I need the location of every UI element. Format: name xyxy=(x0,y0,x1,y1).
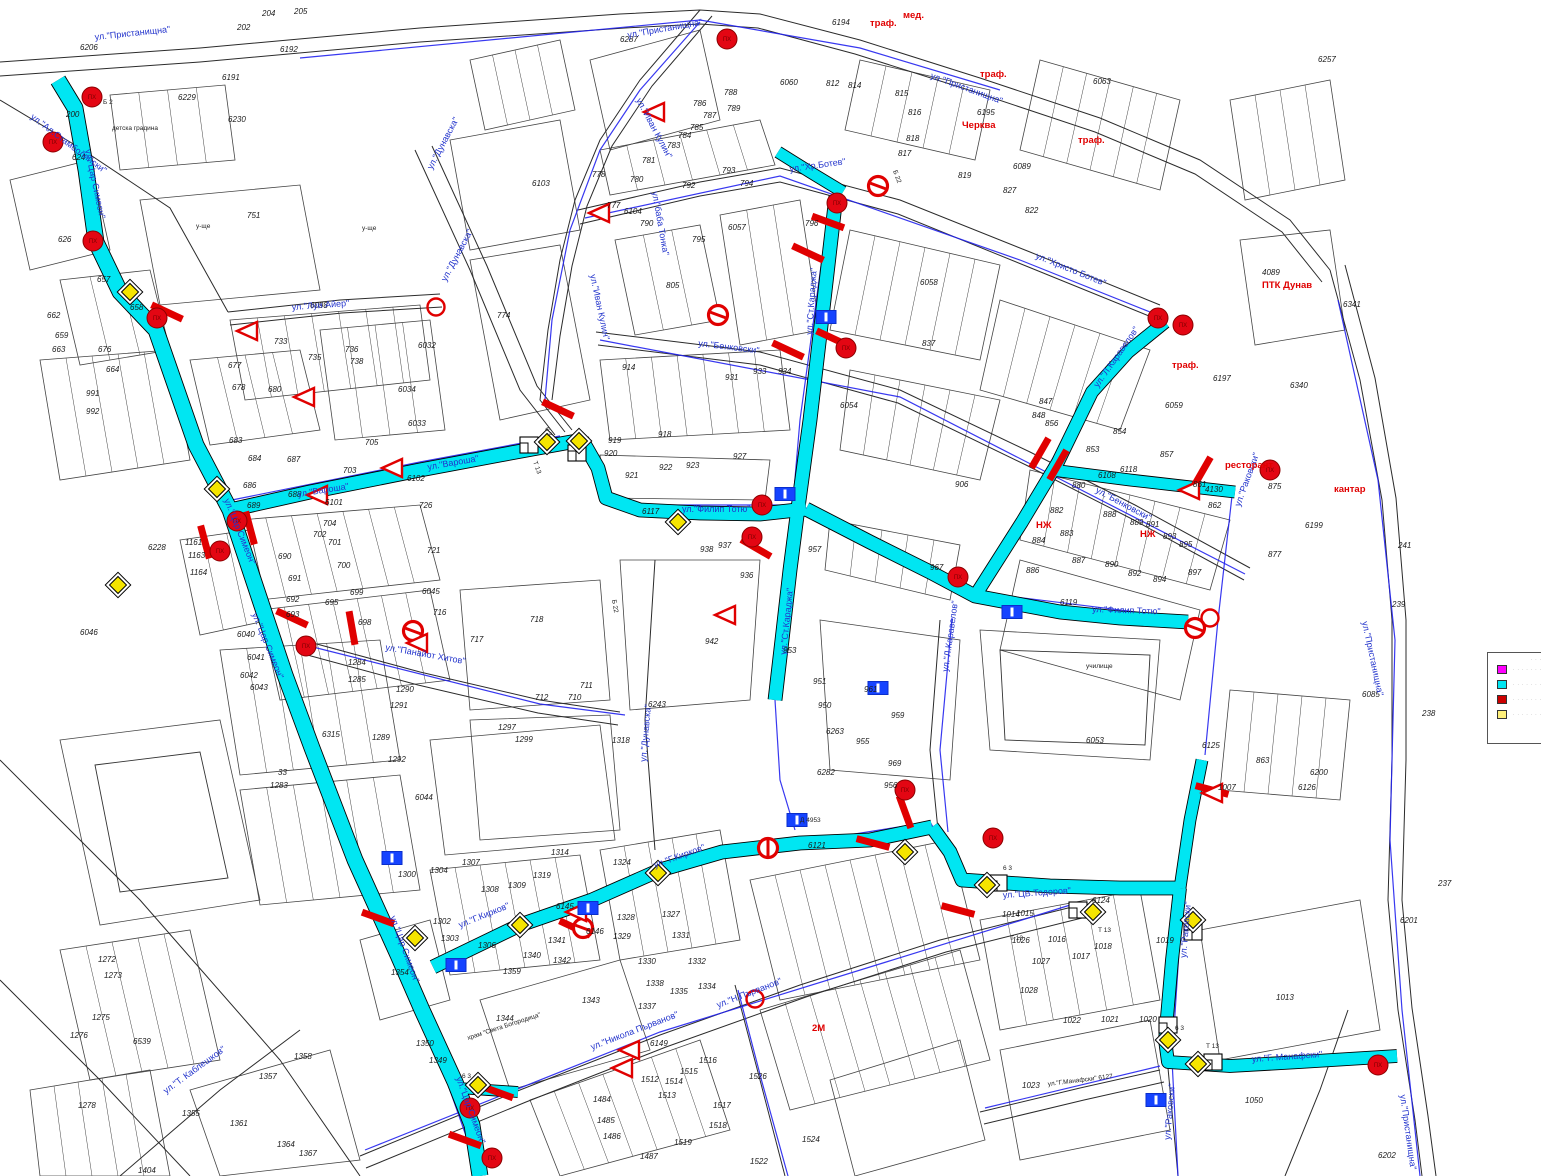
parcel-number: 786 xyxy=(693,99,707,108)
parcel-number: 6060 xyxy=(780,78,798,87)
parcel-number: 683 xyxy=(229,436,243,445)
parcel-line xyxy=(1292,696,1302,796)
parcel-number: 1276 xyxy=(70,1031,88,1040)
parcel-number: 1018 xyxy=(1094,942,1112,951)
parcel-line xyxy=(369,509,389,585)
parcel-number: 684 xyxy=(248,454,262,463)
street-name-label: ул."Пристанищна" xyxy=(94,24,170,42)
parcel-number: 921 xyxy=(625,471,638,480)
map-canvas: ПХПХПХПХПХПХПХПХПХПХПХПХПХПХПХПХПХПХПХПХ… xyxy=(0,0,1541,1176)
parcel-number: 1291 xyxy=(390,701,408,710)
map-annotation: 6 3 xyxy=(1175,1025,1184,1032)
poi-red-label: Черква xyxy=(962,120,996,131)
parcel-number: 914 xyxy=(622,363,636,372)
parcel-number: 1275 xyxy=(92,1013,110,1022)
parcel-line xyxy=(196,88,206,163)
parcel-number: 1328 xyxy=(617,913,635,922)
parcel-line xyxy=(733,125,747,170)
parcel-number: 241 xyxy=(1397,541,1411,550)
parcel-number: 1331 xyxy=(672,931,690,940)
parcel-line xyxy=(1113,895,1133,1005)
parcel-line xyxy=(78,1082,92,1176)
parcel-line xyxy=(493,55,508,125)
parcel-number: 967 xyxy=(930,563,944,572)
map-annotation: 6 3 xyxy=(462,1073,471,1080)
parcel-number: 774 xyxy=(497,311,511,320)
street-name-label: ул."Луи Айер" xyxy=(291,298,349,312)
parcel-number: 927 xyxy=(733,452,747,461)
parcel-block xyxy=(820,620,960,780)
parcel-number: 875 xyxy=(1268,482,1282,491)
parcel-number: 33 xyxy=(278,768,287,777)
street-name-label: ул."Иван Кулин" xyxy=(634,96,674,160)
parcel-line xyxy=(957,395,975,475)
parcel-number: 6228 xyxy=(148,543,166,552)
parcel-line xyxy=(677,356,687,436)
parcel-line xyxy=(554,1091,584,1169)
street-name-label: ул."Т. Каблешков" xyxy=(161,1044,227,1096)
parcel-number: 6104 xyxy=(624,207,642,216)
parcel-block xyxy=(430,725,615,855)
triangle-marker-icon xyxy=(237,322,257,340)
parcel-number: 6229 xyxy=(178,93,196,102)
parcel-number: 699 xyxy=(350,588,364,597)
parcel-line xyxy=(935,958,965,1067)
parcel-number: 6058 xyxy=(920,278,938,287)
parcel-line xyxy=(863,375,875,455)
parcel-line xyxy=(126,1074,144,1176)
parcel-number: 778 xyxy=(592,170,606,179)
map-annotation: Б 22 xyxy=(610,599,619,614)
parcel-number: 1016 xyxy=(1048,935,1066,944)
blue-marker-slit xyxy=(587,904,590,913)
parcel-number: 6124 xyxy=(1092,896,1110,905)
parcel-number: 698 xyxy=(358,618,372,627)
parcel-line xyxy=(168,90,178,165)
parcel-number: 239 xyxy=(1391,600,1406,609)
parcel-number: 1337 xyxy=(638,1002,656,1011)
parcel-line xyxy=(933,390,950,470)
blue-marker-slit xyxy=(1011,608,1014,617)
parcel-number: 812 xyxy=(826,79,840,88)
poi-red-label: траф. xyxy=(980,69,1007,80)
parcel-number: 717 xyxy=(470,635,484,644)
parcel-number: 1329 xyxy=(613,932,631,941)
parcel-number: 1354 xyxy=(391,968,409,977)
road-edge xyxy=(415,150,555,435)
parcel-number: 1013 xyxy=(1276,993,1294,1002)
parcel-number: 969 xyxy=(888,759,902,768)
parcel-line xyxy=(1007,915,1027,1025)
parcel-number: 863 xyxy=(1256,756,1270,765)
parcel-line xyxy=(923,78,938,148)
parcel-number: 884 xyxy=(1032,536,1046,545)
legend-item: · · · · · · · xyxy=(1488,662,1541,677)
parcel-number: 933 xyxy=(753,367,767,376)
parcel-number: 1285 xyxy=(348,675,366,684)
parcel-number: 705 xyxy=(365,438,379,447)
legend-item-label: · · · · · · · xyxy=(1513,682,1541,687)
parcel-block xyxy=(60,930,220,1080)
fire-hydrant-label: ПХ xyxy=(216,549,224,555)
parcel-number: 677 xyxy=(228,361,242,370)
parcel-number: 6089 xyxy=(1013,162,1031,171)
parcel-line xyxy=(825,865,855,985)
parcel-number: 6341 xyxy=(1343,300,1361,309)
parcel-number: 1022 xyxy=(1063,1016,1081,1025)
parcel-line xyxy=(707,130,720,175)
parcel-line xyxy=(366,309,377,385)
parcel-line xyxy=(955,259,975,355)
parcel-line xyxy=(905,248,925,346)
parcel-number: 238 xyxy=(1421,709,1436,718)
parcel-line xyxy=(1043,67,1063,157)
parcel-number: 6059 xyxy=(1165,401,1183,410)
parcel-line xyxy=(327,643,347,765)
parcel-number: 676 xyxy=(98,345,112,354)
fire-hydrant-label: ПХ xyxy=(88,95,96,101)
parcel-number: 6340 xyxy=(1290,381,1308,390)
parcel-number: 711 xyxy=(580,681,593,690)
parcel-number: 1335 xyxy=(670,987,688,996)
street-name-label: ул."Дунавска" xyxy=(425,115,461,171)
road-edge xyxy=(0,760,360,1176)
parcel-line xyxy=(949,84,964,154)
parcel-number: 918 xyxy=(658,430,672,439)
parcel-number: 664 xyxy=(106,365,120,374)
parcel-number: 936 xyxy=(740,571,754,580)
parcel-number: 700 xyxy=(337,561,351,570)
parcel-line xyxy=(885,973,915,1079)
road-edge xyxy=(0,980,190,1176)
parcel-number: 6194 xyxy=(832,18,850,27)
parcel-number: 1284 xyxy=(348,658,366,667)
parcel-number: 1343 xyxy=(582,996,600,1005)
legend-item-label: · · · · · · · xyxy=(1513,667,1541,672)
parcel-number: 6046 xyxy=(80,628,98,637)
parcel-number: 1292 xyxy=(388,755,406,764)
blue-marker-slit xyxy=(796,816,799,825)
parcel-number: 794 xyxy=(740,179,754,188)
parcel-number: 955 xyxy=(856,737,870,746)
water-pipe-line xyxy=(985,1066,1160,1108)
parcel-number: 1361 xyxy=(230,1119,248,1128)
map-annotation: детска градина xyxy=(112,125,158,132)
street-name-label: ул."Иван Кулин" xyxy=(588,273,612,340)
parcel-number: 883 xyxy=(1060,529,1074,538)
parcel-number: 827 xyxy=(1003,186,1017,195)
parcel-number: 1512 xyxy=(641,1075,659,1084)
parcel-block xyxy=(1000,1020,1170,1160)
poi-red-label: кантар xyxy=(1334,484,1366,495)
parcel-number: 950 xyxy=(818,701,832,710)
parcel-number: 718 xyxy=(530,615,544,624)
parcel-number: 1364 xyxy=(277,1140,295,1149)
parcel-number: 1021 xyxy=(1101,1015,1119,1024)
parcel-block xyxy=(840,370,1000,480)
parcel-number: 837 xyxy=(922,339,936,348)
parcel-number: 1273 xyxy=(104,971,122,980)
poi-red-label: траф. xyxy=(870,18,897,29)
street-name-label: ул."Христо Ботев" xyxy=(1034,251,1107,288)
parcel-number: 6206 xyxy=(80,43,98,52)
parcel-block xyxy=(140,185,320,305)
parcel-line xyxy=(1003,308,1025,396)
blue-marker-slit xyxy=(1155,1096,1158,1105)
fire-hydrant-label: ПХ xyxy=(1154,316,1162,322)
parcel-number: 1324 xyxy=(613,858,631,867)
parcel-number: 1300 xyxy=(398,870,416,879)
parcel-number: 6057 xyxy=(728,223,746,232)
parcel-number: 1355 xyxy=(182,1109,200,1118)
parcel-block xyxy=(470,715,620,840)
fire-hydrant-label: ПХ xyxy=(49,140,57,146)
parcel-line xyxy=(284,316,298,395)
parcel-line xyxy=(800,870,830,990)
parcel-number: 1297 xyxy=(498,723,516,732)
map-annotation: училище xyxy=(1086,663,1113,670)
parcel-number: 922 xyxy=(659,463,673,472)
parcel-number: 6230 xyxy=(228,115,246,124)
parcel-line xyxy=(1067,73,1087,163)
parcel-number: 1303 xyxy=(441,934,459,943)
parcel-number: 1404 xyxy=(138,1166,156,1175)
parcel-number: 886 xyxy=(1026,566,1040,575)
parcel-line xyxy=(651,357,661,437)
parcel-number: 784 xyxy=(678,131,692,140)
parcel-number: 663 xyxy=(52,345,66,354)
parcel-number: 702 xyxy=(313,530,327,539)
valve-icon xyxy=(346,611,359,646)
poi-red-label: ПТК Дунав xyxy=(1262,280,1312,291)
parcel-number: 6145 xyxy=(556,902,574,911)
parcel-block xyxy=(30,1070,170,1176)
map-annotation: Т 13 xyxy=(531,460,542,475)
map-annotation: Б 2 xyxy=(103,99,113,106)
parcel-number: 957 xyxy=(808,545,822,554)
parcel-number: 726 xyxy=(419,501,433,510)
parcel-number: 1163 xyxy=(188,551,206,560)
parcel-line xyxy=(850,860,880,980)
blue-marker-slit xyxy=(825,313,828,322)
parcel-line xyxy=(394,507,414,583)
parcel-number: 6125 xyxy=(1202,741,1220,750)
parcel-number: 626 xyxy=(58,235,72,244)
map-annotation: ул."Г.Манафски" 6127 xyxy=(1047,1073,1113,1088)
parcel-number: 6192 xyxy=(280,45,298,54)
parcel-number: 6044 xyxy=(415,793,433,802)
parcel-number: 1289 xyxy=(372,733,390,742)
parcel-line xyxy=(102,1078,118,1176)
parcel-block xyxy=(1220,690,1350,800)
parcel-number: 818 xyxy=(906,134,920,143)
parcel-line xyxy=(538,45,553,115)
parcel-number: 1283 xyxy=(270,781,288,790)
valve-icon xyxy=(791,243,825,264)
parcel-number: 906 xyxy=(955,480,969,489)
parcel-number: 1524 xyxy=(802,1135,820,1144)
parcel-number: 934 xyxy=(778,367,792,376)
parcel-number: 735 xyxy=(308,353,322,362)
parcel-number: 1161 xyxy=(185,538,202,547)
parcel-number: 6121 xyxy=(808,841,826,850)
parcel-number: 6117 xyxy=(642,507,660,516)
parcel-number: 6043 xyxy=(250,683,268,692)
parcel-number: 693 xyxy=(286,610,300,619)
parcel-line xyxy=(1027,317,1050,404)
parcel-number: 777 xyxy=(607,201,621,210)
parcel-number: 1513 xyxy=(658,1091,676,1100)
parcel-line xyxy=(1316,698,1326,798)
poi-red-label: мед. xyxy=(903,10,924,21)
parcel-number: 6119 xyxy=(1060,598,1078,607)
parcel-line xyxy=(672,230,692,325)
parcel-number: 751 xyxy=(247,211,260,220)
parcel-number: 931 xyxy=(725,373,738,382)
poi-red-label: 2М xyxy=(812,1023,825,1034)
parcel-number: 854 xyxy=(1113,427,1127,436)
parcel-line xyxy=(403,323,418,433)
fire-hydrant-label: ПХ xyxy=(723,37,731,43)
parcel-number: 781 xyxy=(642,156,655,165)
parcel-number: 1357 xyxy=(259,1072,277,1081)
parcel-line xyxy=(1090,80,1110,170)
legend-item: · · · · · · · xyxy=(1488,692,1541,707)
road-edge xyxy=(540,10,700,432)
parcel-line xyxy=(1137,93,1157,183)
parcel-line xyxy=(293,785,313,900)
parcel-line xyxy=(871,66,886,136)
parcel-number: 956 xyxy=(884,781,898,790)
parcel-number: 790 xyxy=(640,219,654,228)
valve-icon xyxy=(941,902,976,918)
parcel-block xyxy=(620,560,760,710)
parcel-line xyxy=(112,942,142,1072)
parcel-number: 1017 xyxy=(1072,952,1090,961)
parcel-number: 1516 xyxy=(699,1056,717,1065)
parcel-number: 6191 xyxy=(222,73,240,82)
parcel-number: 1367 xyxy=(299,1149,317,1158)
parcel-number: 1332 xyxy=(688,957,706,966)
parcel-number: 6200 xyxy=(1310,768,1328,777)
parcel-number: 6102 xyxy=(407,474,425,483)
parcel-number: 1487 xyxy=(640,1152,658,1161)
parcel-number: 738 xyxy=(350,357,364,366)
parcel-block xyxy=(470,245,590,420)
parcel-line xyxy=(1268,694,1278,794)
parcel-number: 780 xyxy=(630,175,644,184)
parcel-block xyxy=(460,580,610,710)
parcel-line xyxy=(651,1057,681,1143)
parcel-number: 6118 xyxy=(1120,465,1138,474)
parcel-number: 1050 xyxy=(1245,1096,1263,1105)
parcel-line xyxy=(835,988,865,1092)
legend-box: · · ·· · · · · · ·· · · · · · ·· · · · ·… xyxy=(1487,652,1541,744)
parcel-number: 942 xyxy=(705,637,719,646)
parcel-number: 1518 xyxy=(709,1121,727,1130)
parcel-number: 205 xyxy=(293,7,308,16)
poi-red-label: траф. xyxy=(1172,360,1199,371)
parcel-number: 6197 xyxy=(1213,374,1231,383)
parcel-line xyxy=(66,358,86,476)
cadastral-water-map: ПХПХПХПХПХПХПХПХПХПХПХПХПХПХПХПХПХПХПХПХ… xyxy=(0,0,1541,1176)
parcel-line xyxy=(1244,692,1254,792)
fire-hydrant-label: ПХ xyxy=(954,575,962,581)
parcel-line xyxy=(910,965,940,1073)
parcel-number: 1486 xyxy=(603,1132,621,1141)
map-annotation: 6 3 xyxy=(1003,865,1012,872)
water-pipe-line xyxy=(738,990,788,1176)
parcel-number: 848 xyxy=(1032,411,1046,420)
parcel-number: 785 xyxy=(690,123,704,132)
parcel-number: 4130 xyxy=(1205,485,1223,494)
parcel-number: 1526 xyxy=(749,1072,767,1081)
parcel-number: 1299 xyxy=(515,735,533,744)
parcel-number: 880 xyxy=(1072,481,1086,490)
parcel-number: 716 xyxy=(433,608,447,617)
parcel-number: 1514 xyxy=(665,1077,683,1086)
road-edge xyxy=(1345,265,1436,1176)
parcel-number: 1019 xyxy=(1156,936,1174,945)
parcel-line xyxy=(245,355,265,438)
parcel-number: 1164 xyxy=(190,568,208,577)
legend-swatch xyxy=(1497,695,1507,704)
building-outline xyxy=(1000,650,1150,745)
fire-hydrant-label: ПХ xyxy=(989,836,997,842)
parcel-number: 920 xyxy=(604,449,618,458)
ring-marker-icon xyxy=(1202,610,1219,627)
parcel-number: 1327 xyxy=(662,910,680,919)
parcel-number: 1309 xyxy=(508,881,526,890)
parcel-number: 853 xyxy=(1086,445,1100,454)
parcel-number: 6195 xyxy=(977,108,995,117)
fire-hydrant-label: ПХ xyxy=(1374,1063,1382,1069)
parcel-number: 6101 xyxy=(325,498,343,507)
poi-red-label: НЖ xyxy=(1036,520,1052,531)
parcel-number: 1015 xyxy=(1016,909,1034,918)
parcel-line xyxy=(1050,325,1075,410)
parcel-number: 788 xyxy=(724,88,738,97)
parcel-number: 1007 xyxy=(1218,783,1236,792)
parcel-line xyxy=(703,354,713,434)
map-annotation: Б 22 xyxy=(891,169,902,184)
triangle-marker-icon xyxy=(715,606,735,624)
parcel-number: 857 xyxy=(1160,450,1174,459)
parcel-number: 6263 xyxy=(826,727,844,736)
parcel-line xyxy=(54,1086,66,1176)
fire-hydrant-label: ПХ xyxy=(488,1156,496,1162)
parcel-number: 961 xyxy=(864,685,877,694)
parcel-number: 6201 xyxy=(1400,916,1418,925)
parcel-number: 951 xyxy=(813,677,826,686)
parcel-line xyxy=(855,236,875,335)
parcel-number: 856 xyxy=(1045,419,1059,428)
parcel-number: 695 xyxy=(325,598,339,607)
road-edge xyxy=(930,620,940,830)
parcel-number: 1278 xyxy=(78,1101,96,1110)
parcel-line xyxy=(910,385,925,465)
parcel-number: 6202 xyxy=(1378,1151,1396,1160)
parcel-number: 1519 xyxy=(674,1138,692,1147)
parcel-number: 817 xyxy=(898,149,912,158)
parcel-line xyxy=(773,205,793,335)
legend-item-label: · · · · · · · xyxy=(1513,712,1541,717)
parcel-line xyxy=(785,1003,815,1104)
parcel-number: 1319 xyxy=(533,871,551,880)
fire-hydrant-label: ПХ xyxy=(758,503,766,509)
parcel-number: 923 xyxy=(686,461,700,470)
parcel-number: 1515 xyxy=(680,1067,698,1076)
